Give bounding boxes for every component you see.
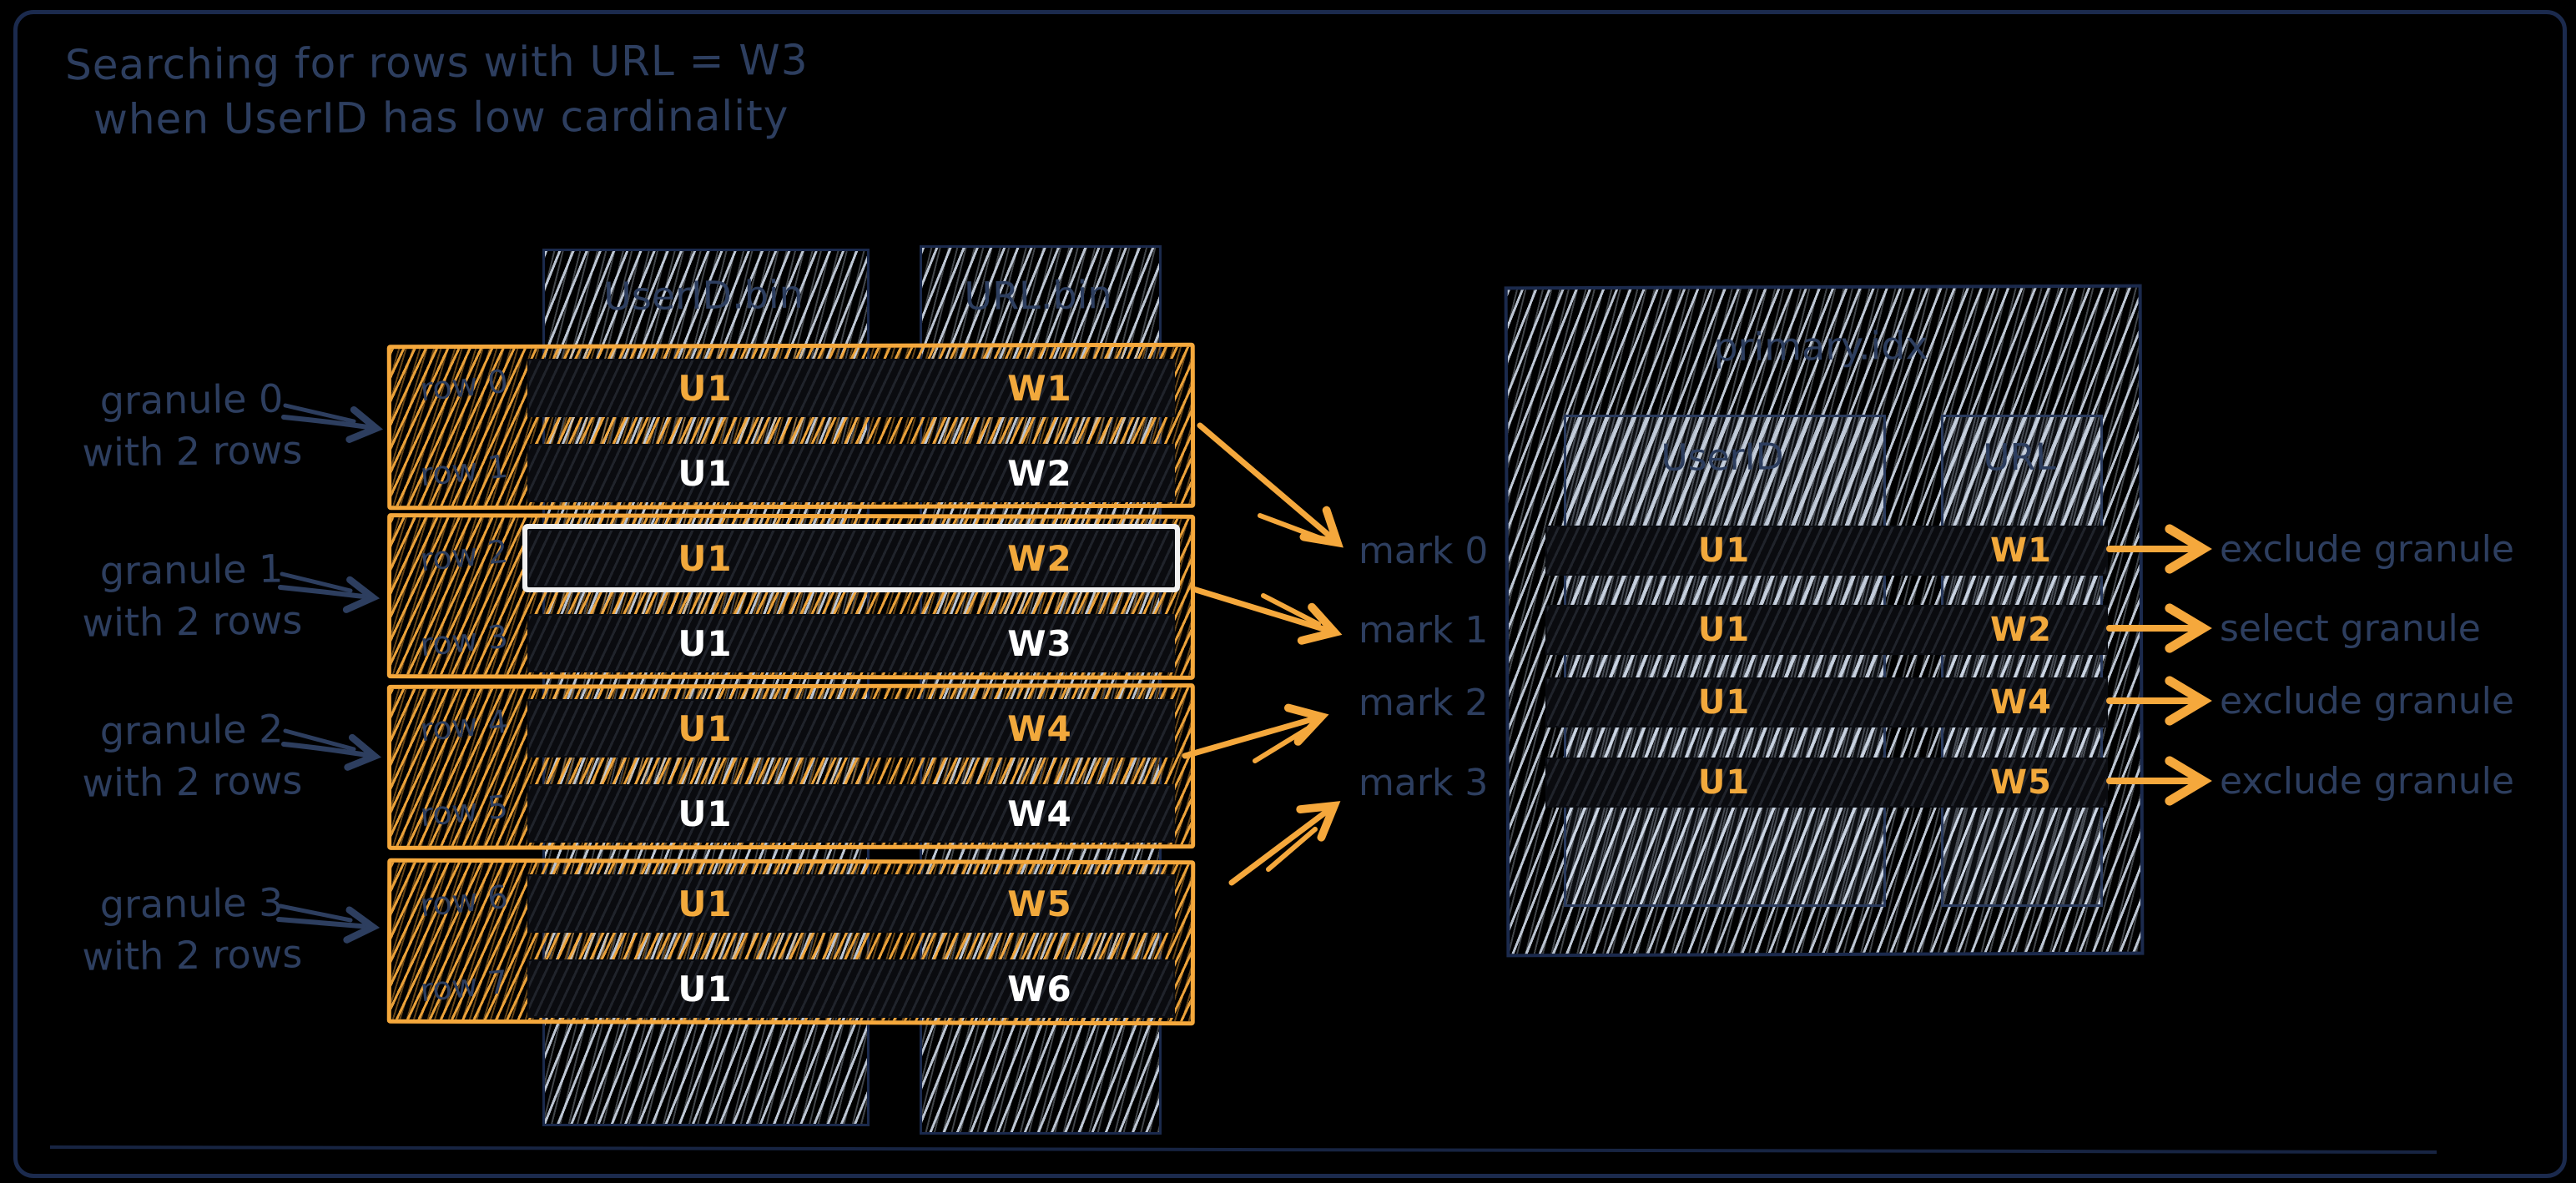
row-5-userid-cell: U1 (544, 786, 866, 841)
granule-0-caption-line2: with 2 rows (42, 423, 343, 479)
mark-2-label: mark 2 (1359, 679, 1567, 726)
row-5-url-cell: W4 (921, 786, 1158, 841)
idx-userid-column-box (1564, 415, 1886, 907)
granule-1-caption-line1: granule 1 (41, 541, 342, 597)
granule-3-caption: granule 3 with 2 rows (41, 875, 343, 983)
userid-bin-header: UserID.bin (542, 259, 865, 332)
idx-row-2-url-cell: W4 (1943, 679, 2100, 726)
row-6-userid-cell: U1 (544, 876, 866, 931)
idx-row-1-userid-cell: U1 (1565, 607, 1883, 653)
idx-row-0-url-cell: W1 (1943, 527, 2100, 574)
idx-row: U1 W1 (1545, 526, 2108, 576)
action-label-select-1: select granule (2220, 605, 2576, 652)
table-row: U1 W6 (527, 959, 1175, 1018)
granule-1-caption: granule 1 with 2 rows (41, 541, 343, 649)
idx-row-3-url-cell: W5 (1943, 759, 2100, 806)
action-label-exclude-3: exclude granule (2220, 758, 2576, 804)
row-1-url-cell: W2 (921, 446, 1158, 501)
mark-1-label: mark 1 (1359, 607, 1567, 653)
row-4-url-cell: W4 (921, 701, 1158, 756)
table-row: U1 W5 (527, 874, 1175, 933)
idx-userid-header: UserID (1564, 426, 1882, 488)
row-7-url-cell: W6 (921, 961, 1158, 1016)
idx-row-0-userid-cell: U1 (1565, 527, 1883, 574)
url-bin-header: URL.bin (920, 259, 1157, 332)
table-row: U1 W1 (527, 359, 1175, 417)
idx-row: U1 W2 (1545, 605, 2108, 655)
row-3-url-cell: W3 (921, 616, 1158, 671)
idx-url-column-box (1941, 415, 2103, 907)
diagram-canvas: Searching for rows with URL = W3 when Us… (0, 0, 2576, 1183)
granule-0-caption-line1: granule 0 (41, 371, 342, 427)
idx-row-3-userid-cell: U1 (1565, 759, 1883, 806)
granule-2-caption-line2: with 2 rows (42, 753, 343, 809)
row-4-userid-cell: U1 (544, 701, 866, 756)
primary-idx-title: primary.idx (1505, 315, 2137, 379)
row-0-url-cell: W1 (921, 360, 1158, 415)
table-row: U1 W2 (527, 444, 1175, 502)
mark-0-label: mark 0 (1359, 527, 1567, 574)
row-2-url-cell: W2 (921, 531, 1158, 586)
idx-row-1-url-cell: W2 (1943, 607, 2100, 653)
row-3-userid-cell: U1 (544, 616, 866, 671)
idx-row-2-userid-cell: U1 (1565, 679, 1883, 726)
table-row-highlighted: U1 W2 (527, 529, 1175, 587)
mark-3-label: mark 3 (1359, 759, 1567, 806)
granule-3-caption-line2: with 2 rows (42, 927, 343, 983)
granule-3-caption-line1: granule 3 (41, 875, 342, 931)
idx-row: U1 W5 (1545, 758, 2108, 808)
idx-url-header: URL (1941, 427, 2099, 487)
action-label-exclude-2: exclude granule (2220, 677, 2576, 724)
table-row: U1 W4 (527, 784, 1175, 843)
row-1-userid-cell: U1 (544, 446, 866, 501)
granule-0-caption: granule 0 with 2 rows (41, 371, 343, 479)
table-row: U1 W4 (527, 699, 1175, 758)
row-2-userid-cell: U1 (544, 531, 866, 586)
diagram-title-line2: when UserID has low cardinality (93, 92, 789, 143)
row-6-url-cell: W5 (921, 876, 1158, 931)
row-0-userid-cell: U1 (544, 360, 866, 415)
granule-2-caption: granule 2 with 2 rows (41, 702, 343, 809)
table-row: U1 W3 (527, 614, 1175, 672)
row-7-userid-cell: U1 (544, 961, 866, 1016)
diagram-title-line1: Searching for rows with URL = W3 (65, 36, 809, 89)
idx-row: U1 W4 (1545, 677, 2108, 727)
action-label-exclude-0: exclude granule (2220, 526, 2576, 572)
granule-1-caption-line2: with 2 rows (42, 593, 343, 649)
granule-2-caption-line1: granule 2 (41, 702, 342, 758)
